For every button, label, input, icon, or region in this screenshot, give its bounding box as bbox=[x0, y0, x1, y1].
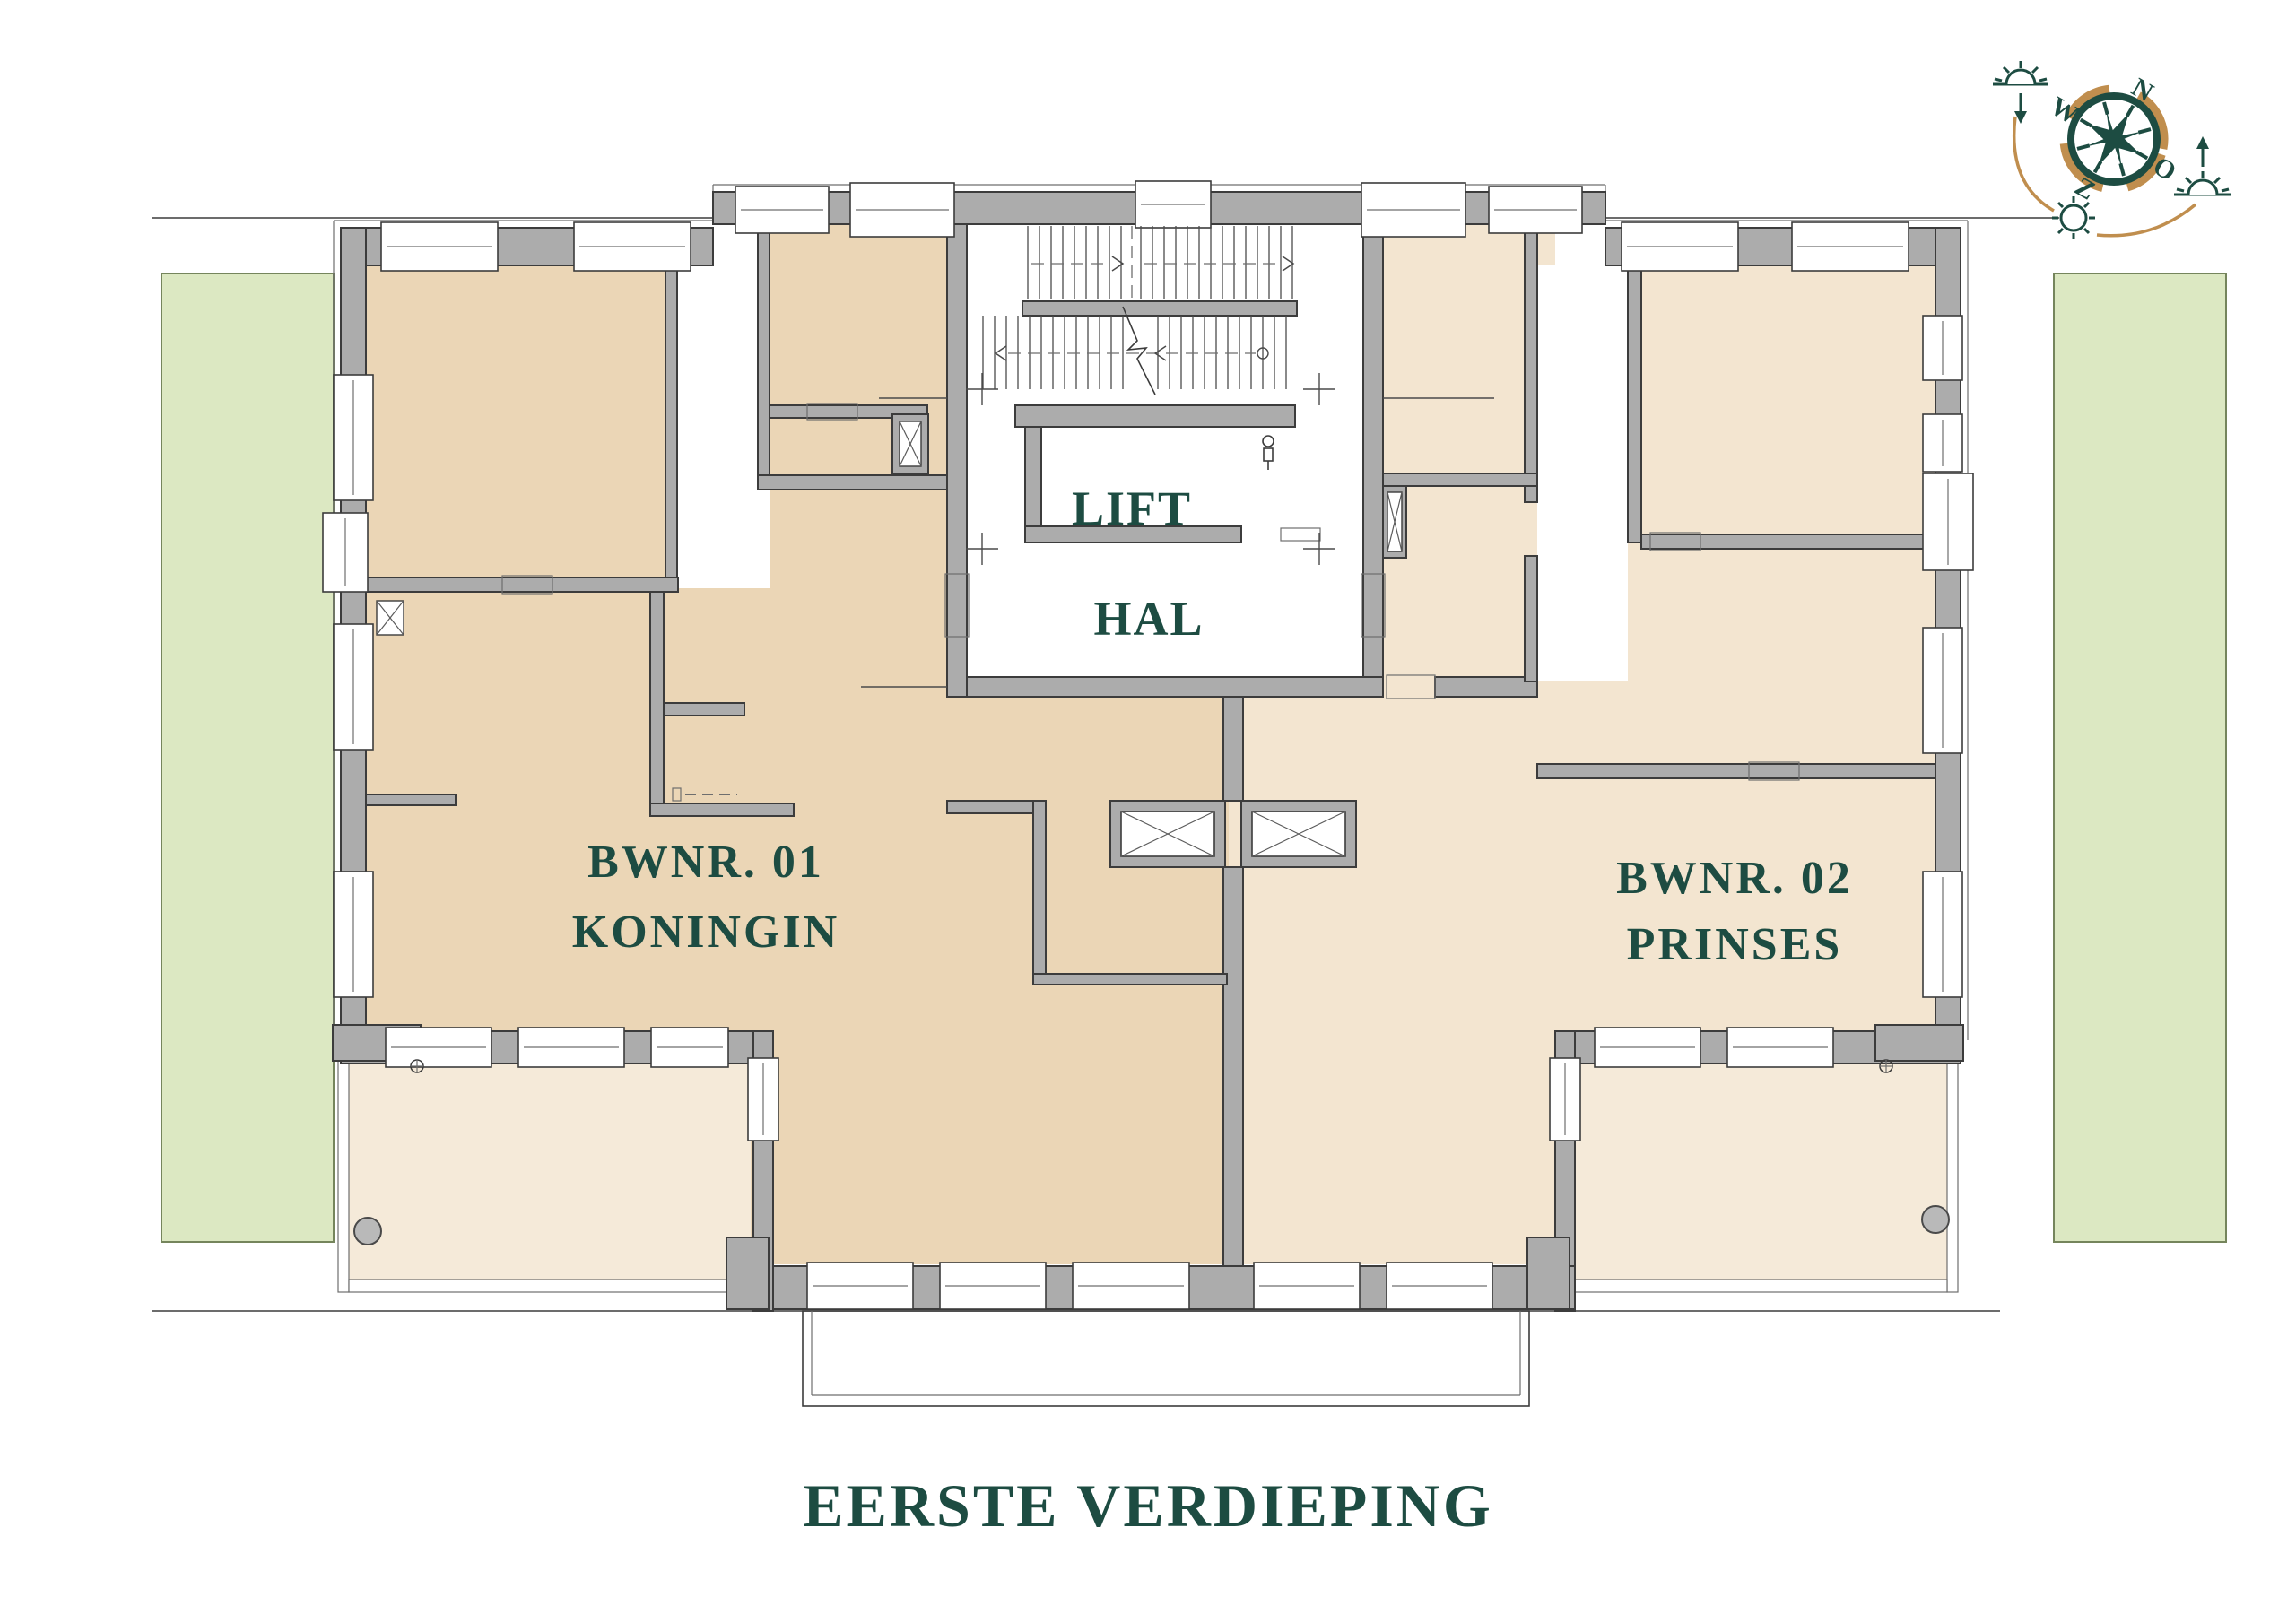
window-row-bottom bbox=[807, 1263, 1492, 1309]
page-title: EERSTE VERDIEPING bbox=[803, 1471, 1493, 1540]
balcony-bottom bbox=[803, 1311, 1529, 1406]
shaft-left bbox=[1110, 801, 1225, 867]
corridor-right bbox=[1537, 265, 1628, 681]
shaft-small-left bbox=[892, 414, 928, 473]
terrace-right bbox=[1557, 1047, 1947, 1280]
terrace-left bbox=[349, 1047, 751, 1280]
sunrise-icon bbox=[2174, 136, 2231, 195]
green-strip-right bbox=[2054, 273, 2226, 1242]
unit2-name-label: PRINSES bbox=[1627, 919, 1843, 970]
shaft-small-right bbox=[1383, 486, 1406, 558]
floorplan-drawing: LIFT HAL BWNR. 01 KONINGIN BWNR. 02 PRIN… bbox=[0, 0, 2296, 1623]
lift-label: LIFT bbox=[1072, 482, 1192, 535]
terrace-planter-right bbox=[1922, 1206, 1949, 1233]
terrace-planter-left bbox=[354, 1218, 381, 1245]
window-row-east bbox=[1923, 316, 1973, 997]
compass-rose-icon: N O Z W bbox=[2046, 73, 2181, 206]
drain-symbol-left bbox=[411, 1060, 423, 1072]
storage-room-left bbox=[665, 265, 770, 588]
sunset-icon bbox=[1993, 61, 2048, 124]
green-strip-left bbox=[161, 273, 334, 1242]
unit1-name-label: KONINGIN bbox=[572, 907, 839, 958]
drain-symbol-right bbox=[1880, 1060, 1892, 1072]
shaft-right bbox=[1241, 801, 1356, 867]
hal-label: HAL bbox=[1093, 592, 1204, 646]
unit2-number-label: BWNR. 02 bbox=[1616, 853, 1853, 904]
floorplan-page: LIFT HAL BWNR. 01 KONINGIN BWNR. 02 PRIN… bbox=[0, 0, 2296, 1623]
compass-w: W bbox=[2046, 91, 2083, 131]
unit1-number-label: BWNR. 01 bbox=[587, 837, 824, 888]
floor-fills bbox=[349, 224, 1947, 1280]
shaft-west-wall bbox=[377, 601, 404, 635]
